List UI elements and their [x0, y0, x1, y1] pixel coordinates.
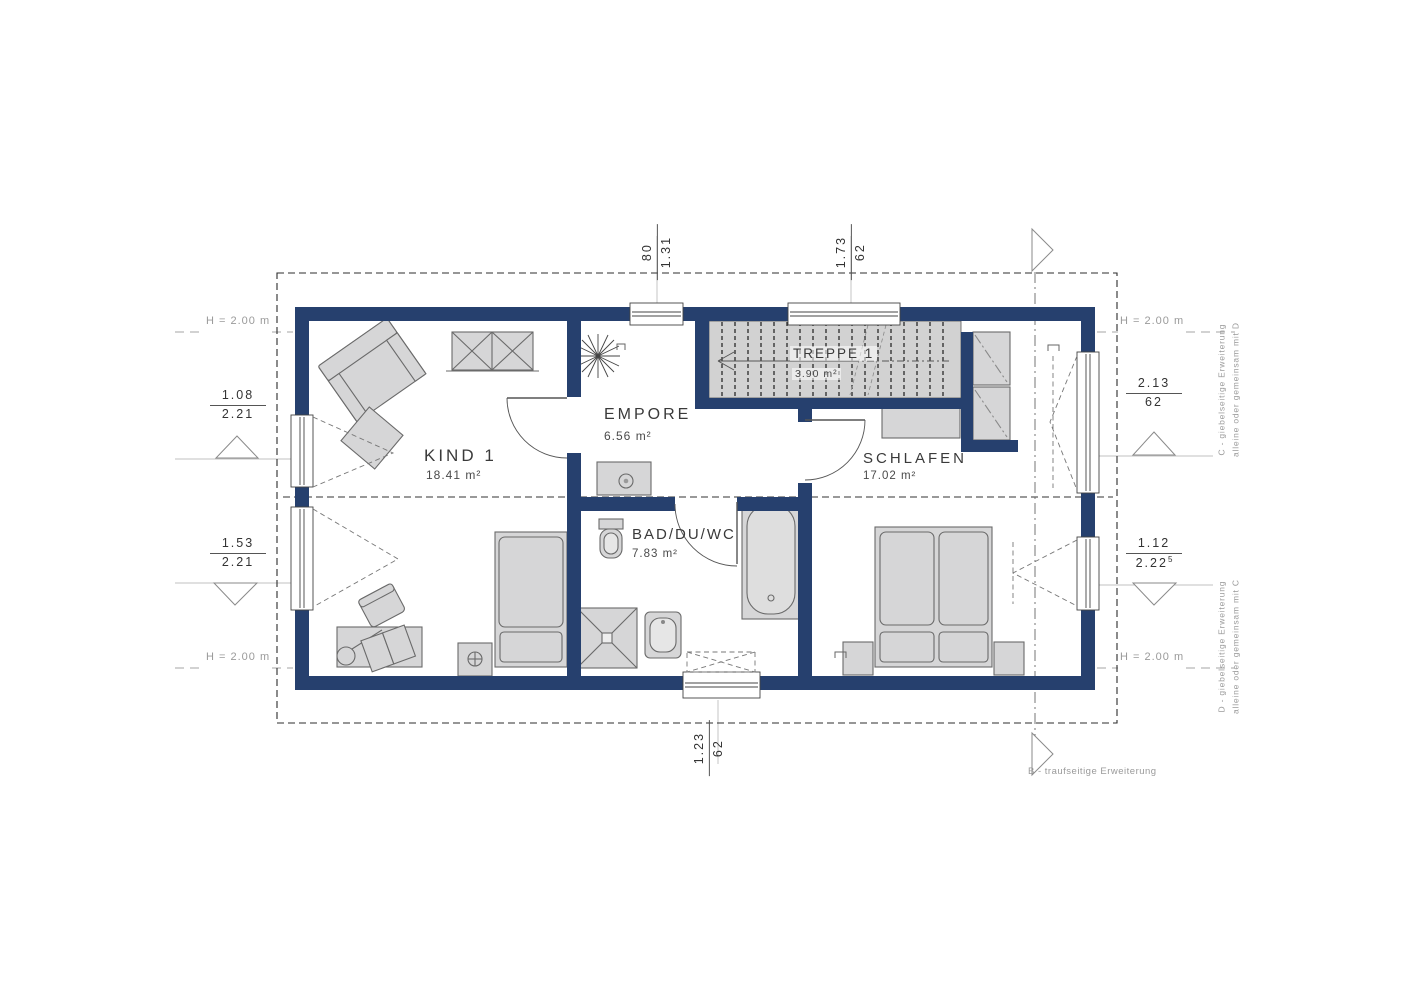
- double-bed: [875, 527, 992, 667]
- annotation-c: C - giebelseitige Erweiterung alleine od…: [1215, 315, 1242, 465]
- dim-bottom-1-den: 62: [709, 720, 727, 776]
- dim-top-1: 80 1.31: [640, 224, 674, 280]
- dim-right-1-num: 2.13: [1126, 376, 1182, 393]
- door-schlafen: [805, 420, 865, 480]
- room-label-empore: EMPORE: [604, 406, 691, 424]
- bathtub: [742, 500, 800, 619]
- wardrobe: [446, 332, 539, 371]
- ottoman: [341, 407, 403, 469]
- door-kind1: [507, 398, 567, 458]
- annotation-b: B - traufseitige Erweiterung: [1028, 766, 1157, 777]
- window-bottom: [683, 672, 760, 698]
- triangle-up-right: [1133, 432, 1175, 455]
- height-label-top-right: H = 2.00 m: [1120, 315, 1184, 327]
- room-label-schlafen: SCHLAFEN: [863, 450, 967, 467]
- room-area-kind1: 18.41 m²: [426, 468, 481, 482]
- single-bed: [495, 532, 567, 667]
- dim-left-1-den: 2.21: [210, 405, 266, 423]
- dim-right-1: 2.13 62: [1126, 376, 1182, 410]
- room-area-schlafen: 17.02 m²: [863, 470, 916, 482]
- dim-left-2-num: 1.53: [210, 536, 266, 553]
- annotation-d-line1: D - giebelseitige Erweiterung: [1215, 572, 1229, 722]
- washing-machine: [597, 462, 651, 495]
- dim-right-2: 1.12 2.225: [1126, 536, 1182, 571]
- height-label-top-left: H = 2.00 m: [206, 315, 270, 327]
- dim-right-2-num: 1.12: [1126, 536, 1182, 553]
- armchair: [318, 318, 426, 422]
- room-label-kind1: KIND 1: [424, 446, 497, 466]
- bathroom-sink: [645, 612, 681, 658]
- room-area-bad: 7.83 m²: [632, 548, 678, 560]
- floor-plan-svg: [0, 0, 1414, 1000]
- annotation-d: D - giebelseitige Erweiterung alleine od…: [1215, 572, 1242, 722]
- dim-bottom-1-num: 1.23: [692, 720, 709, 776]
- room-label-bad: BAD/DU/WC: [632, 526, 736, 543]
- dim-left-2-den: 2.21: [210, 553, 266, 571]
- triangle-section-b-top: [1032, 229, 1053, 271]
- dim-top-1-num: 80: [640, 224, 657, 280]
- window-top-left: [630, 303, 683, 325]
- dim-right-1-den: 62: [1126, 393, 1182, 411]
- dim-top-1-den: 1.31: [657, 224, 675, 280]
- triangle-down-right: [1133, 583, 1176, 605]
- nightstand-right: [994, 642, 1024, 675]
- room-area-empore: 6.56 m²: [604, 429, 652, 443]
- window-right-upper: [1077, 352, 1099, 493]
- dim-top-2-den: 62: [851, 224, 869, 280]
- window-top-right: [788, 303, 900, 325]
- dim-left-2: 1.53 2.21: [210, 536, 266, 570]
- annotation-c-line2: alleine oder gemeinsam mit D: [1229, 315, 1243, 465]
- room-area-treppe: 3.90 m²: [792, 368, 841, 380]
- dim-bottom-1: 1.23 62: [692, 720, 726, 776]
- nightstand-kind1: [458, 643, 492, 676]
- dim-left-1-num: 1.08: [210, 388, 266, 405]
- window-right-lower: [1077, 537, 1099, 610]
- desk-chair: [358, 583, 406, 628]
- window-left-lower: [291, 507, 313, 610]
- closet: [973, 332, 1010, 440]
- dim-top-2-num: 1.73: [834, 224, 851, 280]
- annotation-d-line2: alleine oder gemeinsam mit C: [1229, 572, 1243, 722]
- room-label-treppe: TREPPE 1: [790, 346, 877, 361]
- dim-right-2-sup: 5: [1168, 555, 1172, 564]
- annotation-c-line1: C - giebelseitige Erweiterung: [1215, 315, 1229, 465]
- plant: [576, 334, 620, 378]
- height-label-bottom-right: H = 2.00 m: [1120, 651, 1184, 663]
- shower: [577, 608, 637, 668]
- triangle-up-left: [216, 436, 258, 458]
- dim-left-1: 1.08 2.21: [210, 388, 266, 422]
- triangle-down-left: [214, 583, 257, 605]
- floor-plan-page: { "rooms": { "kind1": {"name": "KIND 1",…: [0, 0, 1414, 1000]
- height-label-bottom-left: H = 2.00 m: [206, 651, 270, 663]
- dim-right-2-den: 2.225: [1126, 553, 1182, 572]
- toilet: [599, 519, 623, 558]
- sideboard: [882, 407, 960, 438]
- dim-top-2: 1.73 62: [834, 224, 868, 280]
- nightstand-left: [843, 642, 873, 675]
- window-left-upper: [291, 415, 313, 487]
